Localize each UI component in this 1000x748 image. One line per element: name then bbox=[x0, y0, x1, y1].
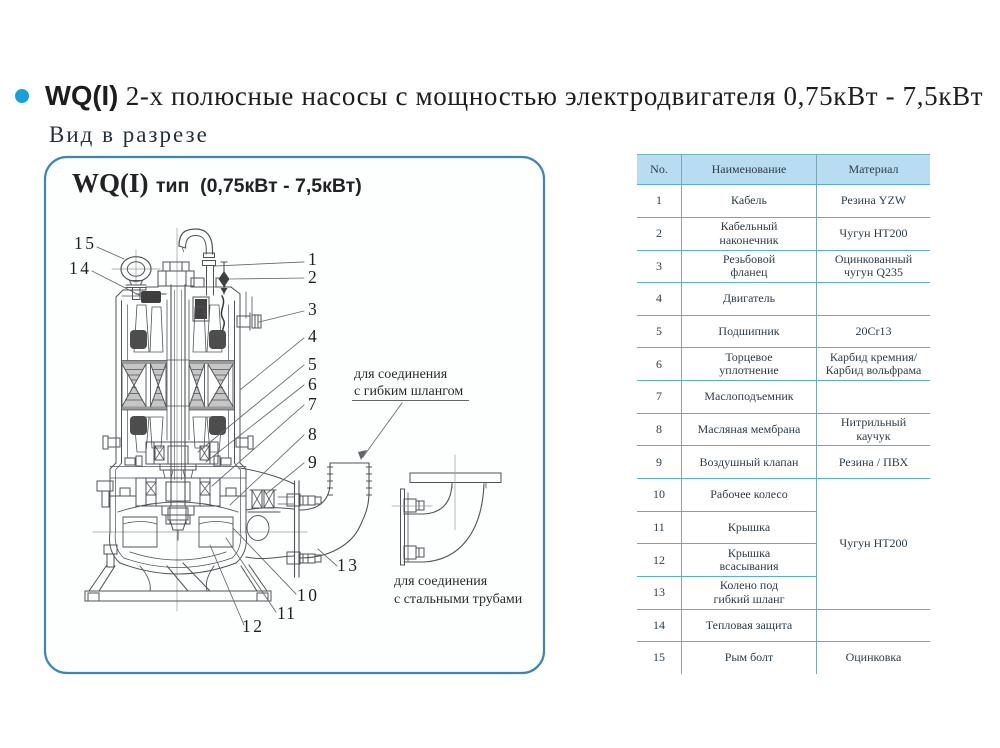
svg-text:3: 3 bbox=[308, 299, 317, 319]
svg-text:6: 6 bbox=[308, 374, 317, 394]
svg-text:7: 7 bbox=[308, 394, 317, 414]
svg-text:1: 1 bbox=[308, 249, 317, 269]
svg-text:14: 14 bbox=[69, 258, 92, 278]
svg-text:для соединения: для соединения bbox=[354, 367, 448, 382]
svg-text:2: 2 bbox=[308, 267, 317, 287]
svg-text:11: 11 bbox=[277, 603, 296, 623]
svg-text:5: 5 bbox=[308, 354, 317, 374]
svg-text:для соединения: для соединения bbox=[394, 574, 488, 589]
svg-text:15: 15 bbox=[74, 233, 97, 253]
svg-text:с гибким шлангом: с гибким шлангом bbox=[354, 384, 463, 399]
svg-text:9: 9 bbox=[308, 452, 317, 472]
svg-text:12: 12 bbox=[242, 616, 265, 636]
svg-text:8: 8 bbox=[308, 424, 317, 444]
svg-text:с стальными трубами: с стальными трубами bbox=[394, 592, 523, 607]
svg-text:10: 10 bbox=[297, 585, 320, 605]
svg-text:13: 13 bbox=[337, 555, 360, 575]
svg-text:4: 4 bbox=[308, 326, 317, 346]
